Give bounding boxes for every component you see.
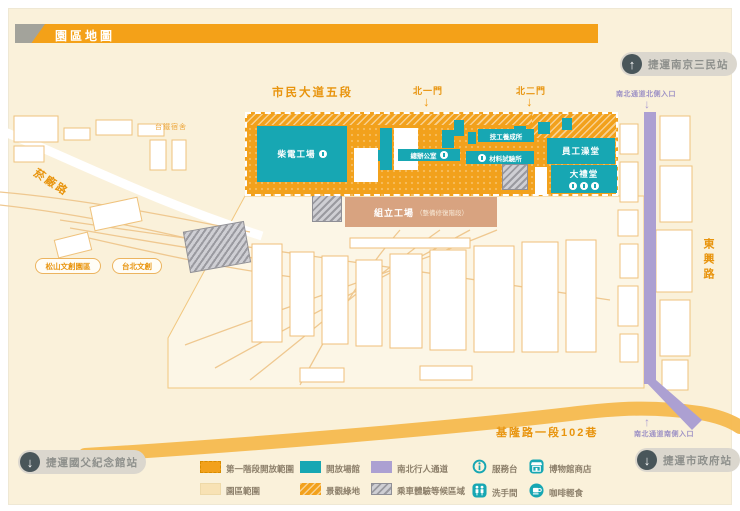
facility-icon xyxy=(569,182,577,190)
taipei-creative-pill: 台北文創 xyxy=(112,258,162,274)
legend-label-coffee: 咖啡輕食 xyxy=(549,487,583,499)
pedestrian-passage xyxy=(644,112,656,384)
legend-label-open-venues: 開放場館 xyxy=(326,463,360,475)
legend-label-restroom: 洗手間 xyxy=(492,487,518,499)
banner-flag xyxy=(15,24,45,43)
station-label: 捷運南京三民站 xyxy=(648,57,729,72)
shop-icon xyxy=(529,459,544,474)
info-icon xyxy=(472,459,487,474)
station-nanjing-sanmin: ↑ 捷運南京三民站 xyxy=(620,52,737,76)
passage-south-arrow-icon: ↑ xyxy=(644,417,650,427)
arrow-down-circle-icon: ↓ xyxy=(637,450,657,470)
building-general-office: 總辦公室 xyxy=(398,149,460,161)
legend-swatch-passage xyxy=(371,461,392,473)
ride-waiting-area xyxy=(502,164,528,190)
gate-north1-arrow-icon: ↓ xyxy=(423,97,430,107)
building-label: 員工澡堂 xyxy=(562,145,600,157)
building-block xyxy=(468,132,476,144)
building-note: （整備修復階段） xyxy=(416,207,468,217)
facility-icon xyxy=(319,150,327,158)
station-label: 捷運市政府站 xyxy=(663,453,732,468)
building-block xyxy=(354,148,378,182)
building-staff-bath: 員工澡堂 xyxy=(547,138,615,164)
road-dongxing: 東興路 xyxy=(700,238,716,283)
station-label: 捷運國父紀念館站 xyxy=(46,455,138,470)
ride-waiting-area xyxy=(312,194,342,222)
building-label: 組立工場 xyxy=(374,206,414,219)
gate-north2-arrow-icon: ↓ xyxy=(526,97,533,107)
building-label: 技工養成所 xyxy=(490,131,523,141)
legend-swatch-phase1 xyxy=(200,461,221,473)
legend-label-passage: 南北行人通道 xyxy=(397,463,448,475)
building-label: 材料試驗所 xyxy=(489,153,522,163)
road-keelung-lane: 基隆路一段102巷 xyxy=(496,424,598,440)
building-block xyxy=(535,167,547,195)
building-block xyxy=(562,118,572,130)
tra-dorm-label: 台鐵宿舍 xyxy=(155,122,187,132)
facility-icon xyxy=(580,182,588,190)
legend-swatch-waiting xyxy=(371,483,392,495)
building-label: 總辦公室 xyxy=(411,150,437,160)
legend-label-info: 服務台 xyxy=(492,463,518,475)
restroom-icon xyxy=(472,483,487,498)
legend-label-waiting: 乘車體驗等候區域 xyxy=(397,485,465,497)
coffee-icon xyxy=(529,483,544,498)
legend-label-park-extent: 園區範圍 xyxy=(226,485,260,497)
building-block xyxy=(380,128,392,170)
page-title: 園區地圖 xyxy=(55,27,115,44)
building-diesel-workshop: 柴電工場 xyxy=(257,126,347,182)
title-banner: 園區地圖 xyxy=(15,24,598,43)
building-training-institute: 技工養成所 xyxy=(478,129,534,142)
legend-swatch-open-venues xyxy=(300,461,321,473)
legend-label-shop: 博物館商店 xyxy=(549,463,592,475)
building-auditorium: 大禮堂 xyxy=(551,165,617,193)
legend-swatch-park-extent xyxy=(200,483,221,495)
building-block xyxy=(454,120,464,136)
legend-label-green: 景觀綠地 xyxy=(326,485,360,497)
station-city-hall: ↓ 捷運市政府站 xyxy=(635,448,740,472)
building-block xyxy=(538,122,550,134)
road-civic-blvd: 市民大道五段 xyxy=(272,84,353,100)
songshan-park-pill: 松山文創園區 xyxy=(35,258,101,274)
building-block xyxy=(378,150,388,161)
building-label: 柴電工場 xyxy=(277,148,315,160)
passage-south-entrance: 南北通道南側入口 xyxy=(634,429,694,439)
park-map-page: 柴電工場 總辦公室 技工養成所 材料試驗所 員工澡堂 大禮堂 xyxy=(0,0,740,511)
building-label: 大禮堂 xyxy=(570,168,599,180)
facility-icon xyxy=(478,154,486,162)
building-assembly-workshop: 組立工場 （整備修復階段） xyxy=(345,197,497,227)
passage-north-arrow-icon: ↓ xyxy=(644,99,650,109)
map-geometry xyxy=(0,0,740,511)
facility-icon xyxy=(591,182,599,190)
east-buildings xyxy=(656,116,692,390)
legend-label-phase1: 第一階段開放範圍 xyxy=(226,463,294,475)
legend-swatch-green xyxy=(300,483,321,495)
phase1-open-area: 柴電工場 總辦公室 技工養成所 材料試驗所 員工澡堂 大禮堂 xyxy=(245,112,618,196)
building-block xyxy=(442,130,454,148)
arrow-down-circle-icon: ↓ xyxy=(20,452,40,472)
arrow-up-circle-icon: ↑ xyxy=(622,54,642,74)
station-syt-memorial: ↓ 捷運國父紀念館站 xyxy=(18,450,146,474)
facility-icon xyxy=(440,151,448,159)
building-material-lab: 材料試驗所 xyxy=(466,151,534,164)
outside-buildings xyxy=(14,116,186,258)
